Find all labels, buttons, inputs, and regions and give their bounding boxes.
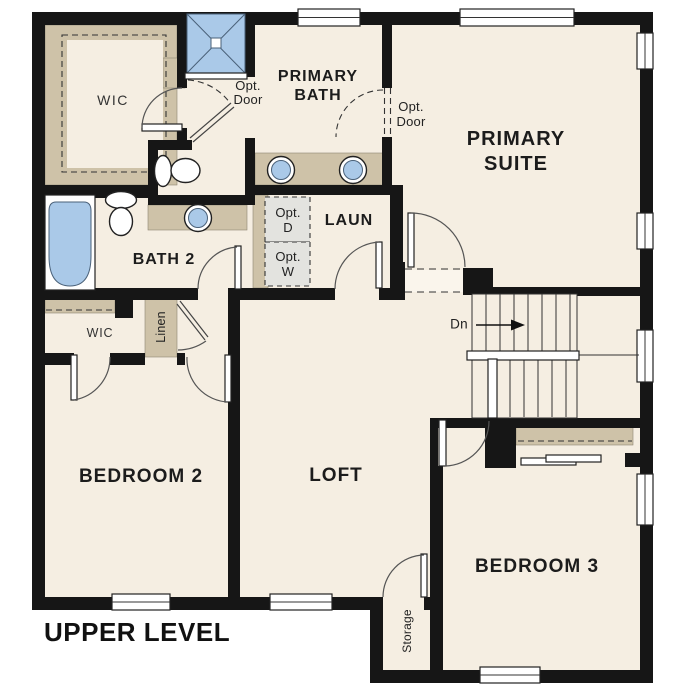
bedroom3-closet-shelf (516, 427, 633, 445)
annotation-line: W (275, 264, 300, 279)
room-label-loft: LOFT (309, 465, 363, 487)
floor-plan-canvas: WIC Opt. Door PRIMARY BATH Opt. Door PRI… (0, 0, 687, 687)
annotation-line: Opt. (397, 99, 426, 114)
room-label-primary-suite: PRIMARY SUITE (467, 127, 565, 177)
window (637, 213, 653, 249)
window (637, 33, 653, 69)
room-label-primary-bath: PRIMARY BATH (278, 67, 358, 105)
bathtub-icon (45, 195, 95, 290)
window (270, 594, 332, 610)
room-label-line: PRIMARY (278, 67, 358, 86)
room-label-primary-wic: WIC (97, 92, 129, 108)
stair-rail (488, 359, 497, 418)
room-label-wic2: WIC (87, 326, 114, 340)
annotation-opt-door-suite: Opt. Door (397, 99, 426, 129)
room-label-linen: Linen (154, 311, 168, 343)
annotation-opt-washer: Opt. W (275, 249, 300, 279)
annotation-line: D (275, 220, 300, 235)
annotation-line: Door (234, 93, 263, 107)
annotation-opt-dryer: Opt. D (275, 205, 300, 235)
annotation-line: Opt. (234, 79, 263, 93)
room-label-bath2: BATH 2 (133, 251, 196, 269)
suite-threshold (405, 269, 463, 292)
sink-icon (268, 157, 295, 184)
window (637, 474, 653, 525)
window (637, 330, 653, 382)
window (298, 9, 360, 26)
annotation-line: Door (397, 114, 426, 129)
window (112, 594, 170, 610)
annotation-opt-door-shower: Opt. Door (234, 79, 263, 107)
room-label-bedroom2: BEDROOM 2 (79, 466, 203, 488)
annotation-line: Opt. (275, 205, 300, 220)
stair-landing-rail (467, 351, 579, 360)
room-label-line: PRIMARY (467, 127, 565, 152)
window (460, 9, 574, 26)
room-label-line: SUITE (467, 152, 565, 177)
annotation-line: Opt. (275, 249, 300, 264)
room-label-bedroom3: BEDROOM 3 (475, 556, 599, 578)
shower-icon (185, 14, 247, 79)
room-label-storage: Storage (400, 609, 414, 652)
room-label-laundry: LAUN (325, 212, 373, 230)
sink-icon (185, 205, 212, 232)
sink-icon (340, 157, 367, 184)
window (480, 667, 540, 683)
room-label-line: BATH (278, 86, 358, 105)
plan-title: UPPER LEVEL (44, 617, 230, 648)
annotation-stairs-down: Dn (450, 317, 468, 332)
